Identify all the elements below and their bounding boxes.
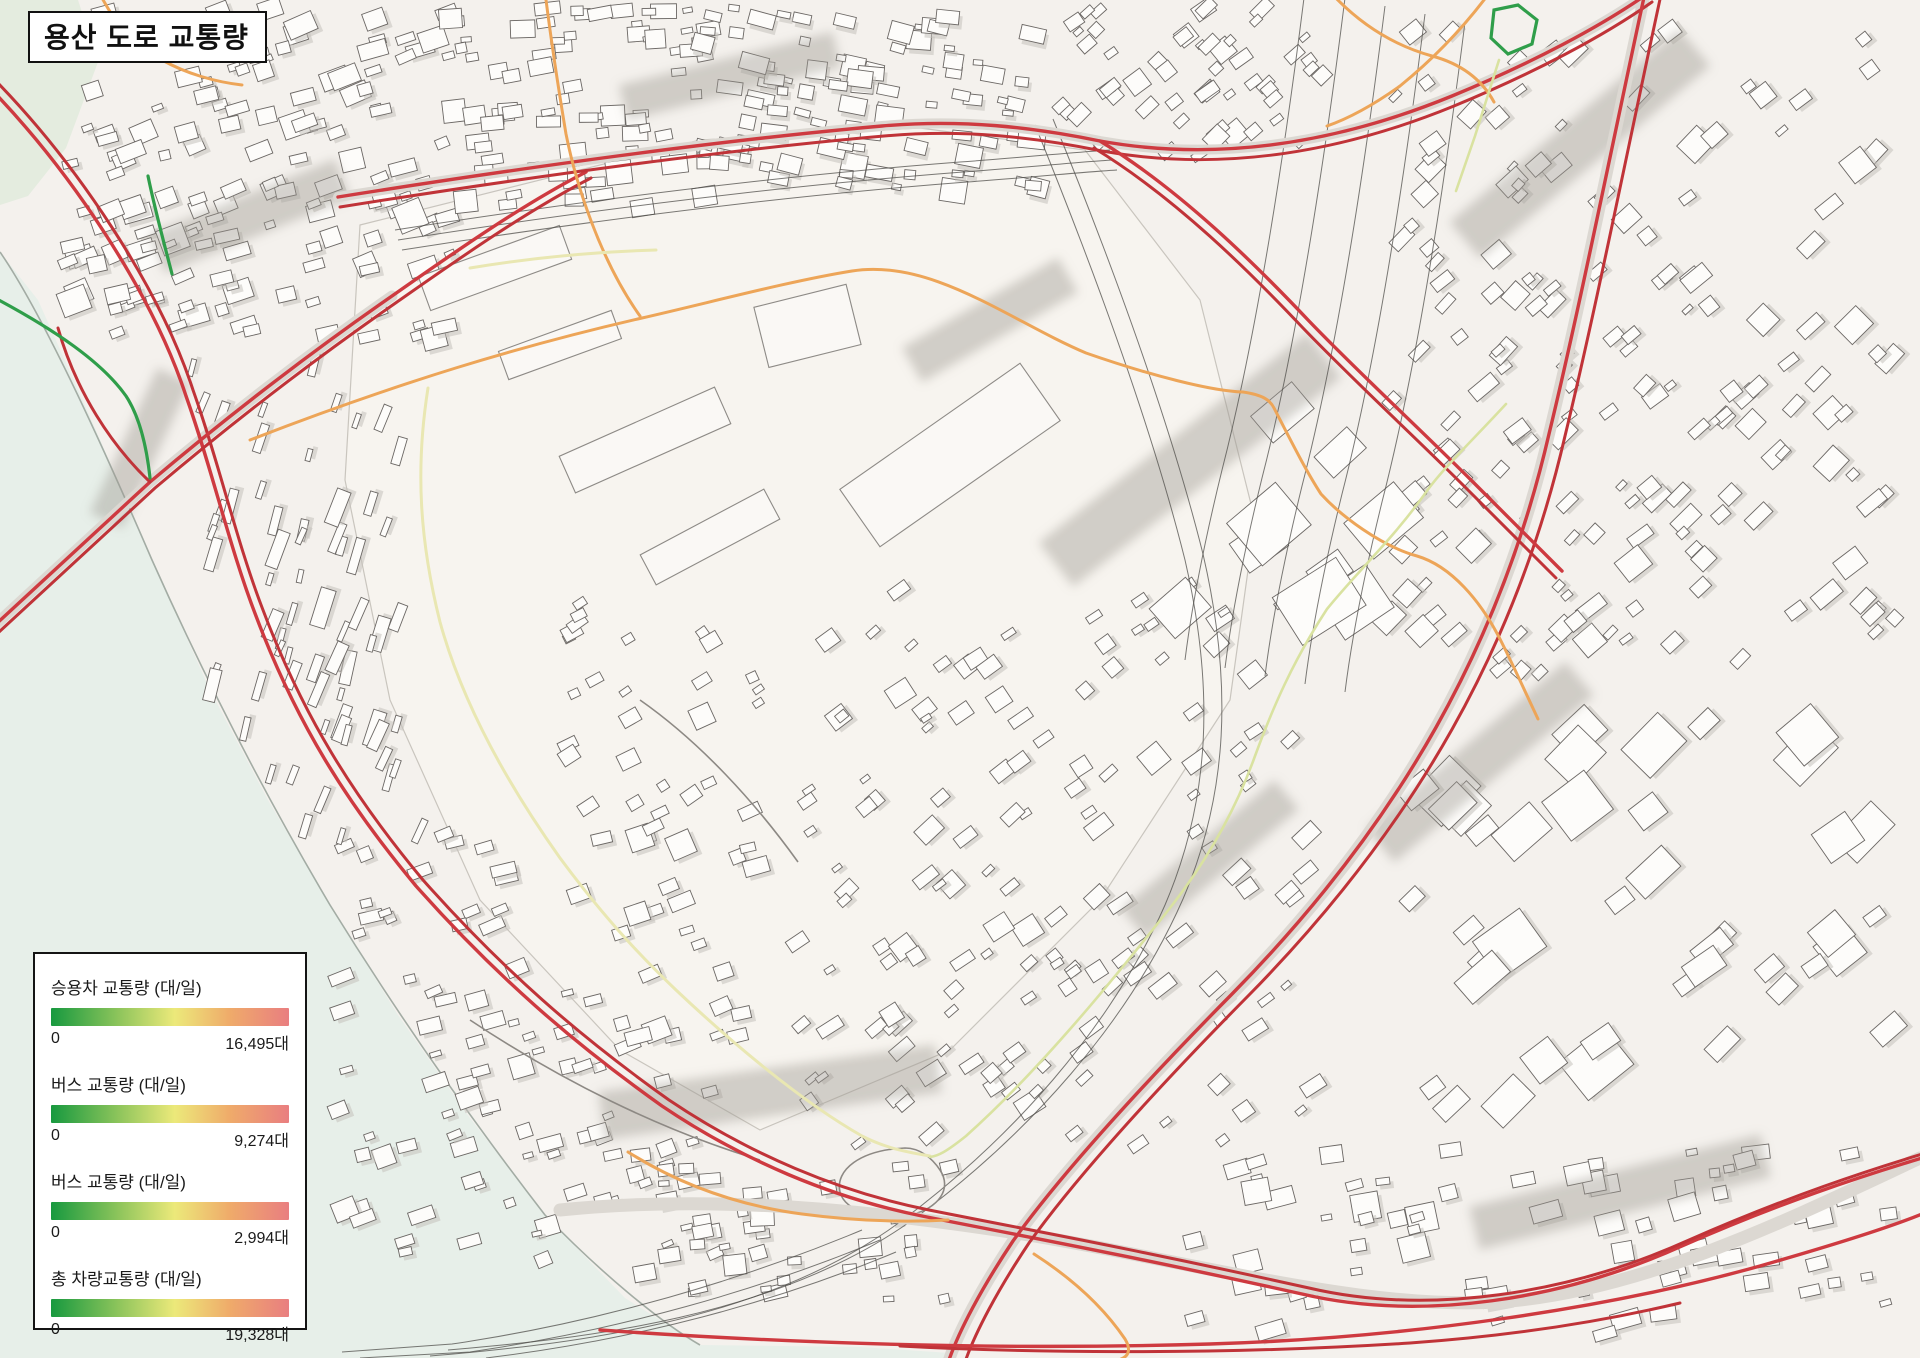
legend-item-bus-a: 버스 교통량 (대/일) 0 9,274대 <box>51 1071 289 1151</box>
legend-item-label: 승용차 교통량 (대/일) <box>51 974 289 999</box>
legend-max-value: 2,994대 <box>234 1224 289 1248</box>
legend-gradient-bar <box>51 1202 289 1220</box>
legend-min-value: 0 <box>51 1127 60 1151</box>
legend-min-value: 0 <box>51 1321 60 1345</box>
legend-item-label: 버스 교통량 (대/일) <box>51 1071 289 1096</box>
map-title: 용산 도로 교통량 <box>28 11 267 63</box>
legend: 승용차 교통량 (대/일) 0 16,495대 버스 교통량 (대/일) 0 9… <box>33 952 307 1330</box>
map-page: 용산 도로 교통량 승용차 교통량 (대/일) 0 16,495대 버스 교통량… <box>0 0 1920 1358</box>
legend-gradient-bar <box>51 1008 289 1026</box>
legend-item-bus-b: 버스 교통량 (대/일) 0 2,994대 <box>51 1168 289 1248</box>
legend-max-value: 9,274대 <box>234 1127 289 1151</box>
legend-gradient-bar <box>51 1299 289 1317</box>
legend-min-value: 0 <box>51 1030 60 1054</box>
legend-item-cars: 승용차 교통량 (대/일) 0 16,495대 <box>51 974 289 1054</box>
legend-max-value: 16,495대 <box>225 1030 289 1054</box>
legend-item-label: 버스 교통량 (대/일) <box>51 1168 289 1193</box>
legend-max-value: 19,328대 <box>225 1321 289 1345</box>
legend-min-value: 0 <box>51 1224 60 1248</box>
legend-item-label: 총 차량교통량 (대/일) <box>51 1265 289 1290</box>
legend-item-total: 총 차량교통량 (대/일) 0 19,328대 <box>51 1265 289 1345</box>
legend-gradient-bar <box>51 1105 289 1123</box>
